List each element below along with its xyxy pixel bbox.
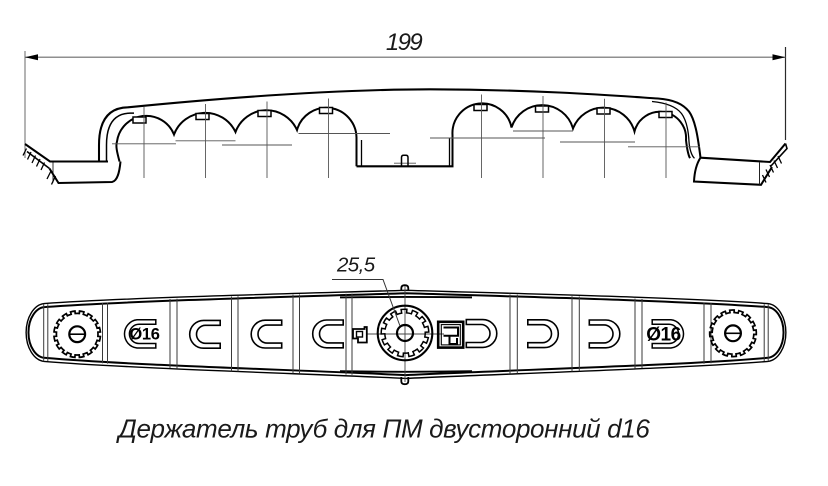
svg-text:Ø16: Ø16 (129, 326, 159, 344)
svg-text:Держатель труб для ПМ двусторо: Держатель труб для ПМ двусторонний d16 (115, 414, 650, 444)
svg-text:25,5: 25,5 (336, 254, 376, 277)
svg-text:Ø16: Ø16 (646, 325, 680, 346)
svg-text:199: 199 (386, 29, 422, 56)
